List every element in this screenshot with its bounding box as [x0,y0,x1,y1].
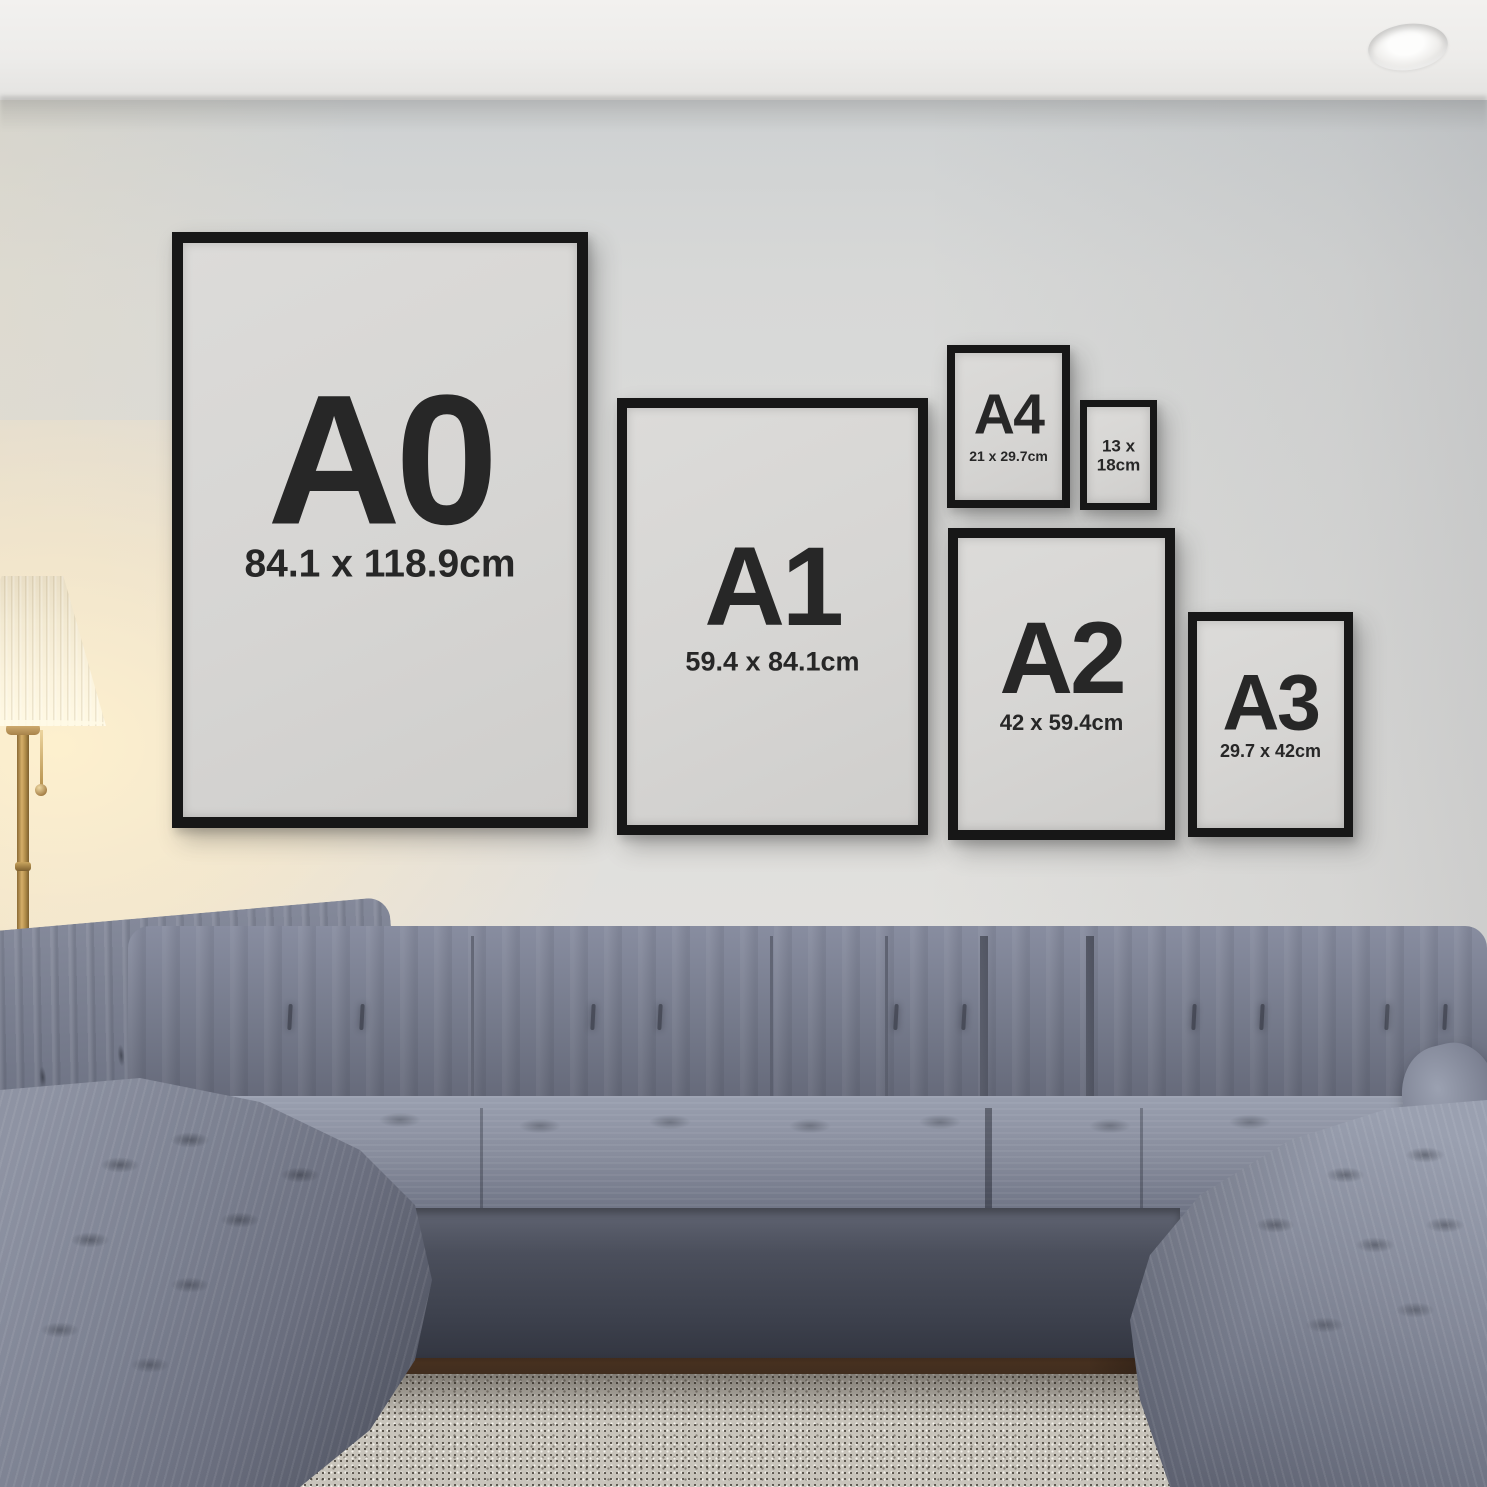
size-dimensions: 59.4 x 84.1cm [627,649,918,676]
lamp-stem-ring [15,862,31,871]
poster-frame-13x18: 13 x 18cm [1080,400,1157,510]
poster-frame-a1: A1 59.4 x 84.1cm [617,398,928,835]
poster-frame-a0: A0 84.1 x 118.9cm [172,232,588,828]
tuft-mark [287,1004,292,1030]
recessed-ceiling-light [1365,19,1450,74]
poster-paper: A3 29.7 x 42cm [1197,621,1344,828]
tuft-mark [1191,1004,1196,1030]
poster-frame-a2: A2 42 x 59.4cm [948,528,1175,840]
living-room-scene: A0 84.1 x 118.9cm A1 59.4 x 84.1cm A4 21… [0,0,1487,1487]
ceiling [0,0,1487,104]
size-label: A4 [955,386,1062,443]
size-dimensions: 42 x 59.4cm [958,712,1165,734]
size-label: A0 [183,369,577,554]
ceiling-wall-shadow [0,96,1487,130]
size-dimensions: 21 x 29.7cm [955,449,1062,463]
poster-frame-a3: A3 29.7 x 42cm [1188,612,1353,837]
poster-paper: A2 42 x 59.4cm [958,538,1165,830]
size-label: A1 [627,531,918,643]
lamp-pull-chain-ball [35,784,47,796]
size-label: A3 [1197,662,1344,741]
poster-paper: A1 59.4 x 84.1cm [627,408,918,825]
tuft-mark [1259,1004,1264,1030]
tuft-mark [1384,1004,1389,1030]
size-dimensions-line2: 18cm [1087,456,1150,473]
tuft-mark [359,1004,364,1030]
poster-paper: 13 x 18cm [1087,407,1150,503]
size-dimensions: 84.1 x 118.9cm [183,545,577,584]
tuft-mark [893,1004,898,1030]
tuft-mark [1442,1004,1447,1030]
tuft-mark [590,1004,595,1030]
sofa-base [345,1208,1180,1358]
tuft-mark [657,1004,662,1030]
poster-paper: A0 84.1 x 118.9cm [183,243,577,817]
poster-frame-a4: A4 21 x 29.7cm [947,345,1070,508]
size-dimensions-line1: 13 x [1087,438,1150,455]
lamp-pull-chain [40,730,43,786]
poster-paper: A4 21 x 29.7cm [955,353,1062,500]
size-dimensions: 29.7 x 42cm [1197,742,1344,760]
tuft-mark [961,1004,966,1030]
size-label: A2 [958,607,1165,709]
